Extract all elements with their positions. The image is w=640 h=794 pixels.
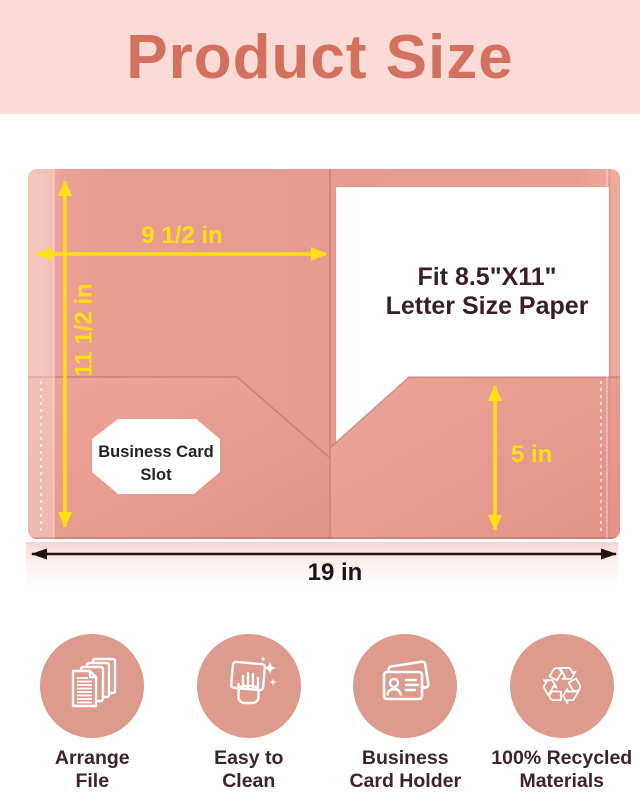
product-size-infographic: { "header": { "title": "Product Size" },… xyxy=(0,0,640,791)
page-title: Product Size xyxy=(126,22,514,93)
feature-list: Arrange File xyxy=(0,600,640,791)
feature-arrange-file: Arrange File xyxy=(14,634,171,791)
total-width-label: 19 in xyxy=(308,559,363,586)
paper-size-text-line1: Fit 8.5"X11" xyxy=(417,263,556,291)
product-diagram: Business Card Slot Fit 8.5"X11" Letter S… xyxy=(0,114,640,600)
feature-business-card-holder: Business Card Holder xyxy=(327,634,484,791)
folder-illustration: Business Card Slot Fit 8.5"X11" Letter S… xyxy=(0,114,640,600)
width-dimension-label: 9 1/2 in xyxy=(141,222,222,249)
pocket-depth-label: 5 in xyxy=(511,441,552,468)
recycle-glyph: ♻ xyxy=(539,657,584,715)
height-dimension-label: 11 1/2 in xyxy=(71,283,98,376)
card-slot-label-line1: Business Card xyxy=(98,443,214,461)
folder-spine xyxy=(28,169,54,539)
paper-size-text-line2: Letter Size Paper xyxy=(386,292,589,320)
header-banner: Product Size xyxy=(0,0,640,114)
feature-label: Business Card Holder xyxy=(349,747,461,794)
feature-recycled-materials: ♻ 100% Recycled Materials xyxy=(484,634,640,791)
business-card-icon xyxy=(353,634,457,738)
feature-label: Arrange File xyxy=(55,747,130,794)
documents-stack-icon xyxy=(40,634,144,738)
card-slot-label-line2: Slot xyxy=(140,466,172,484)
feature-label: Easy to Clean xyxy=(214,747,283,794)
recycle-icon: ♻ xyxy=(510,634,614,738)
feature-label: 100% Recycled Materials xyxy=(491,747,632,794)
cleaning-hand-icon xyxy=(197,634,301,738)
feature-easy-to-clean: Easy to Clean xyxy=(171,634,328,791)
